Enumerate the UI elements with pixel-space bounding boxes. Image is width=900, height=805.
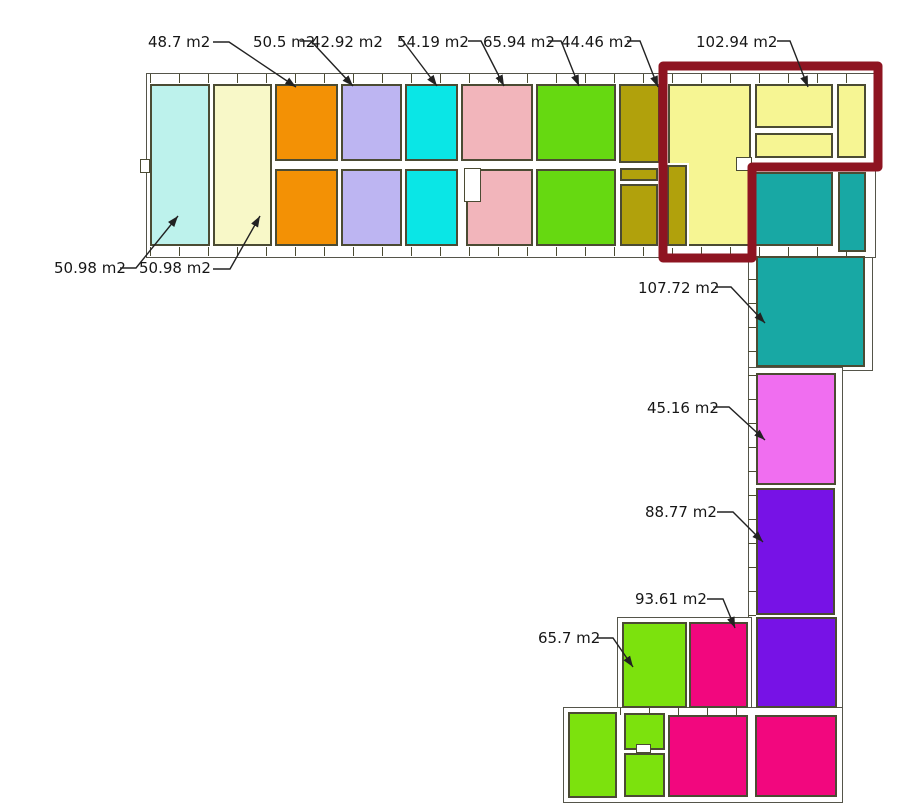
- room-teal-wide[interactable]: [753, 172, 833, 246]
- room-teal-narrow[interactable]: [838, 172, 866, 252]
- area-label: 48.7 m2: [148, 34, 210, 50]
- wall-notch-green-small: [636, 744, 651, 753]
- room-pink-top[interactable]: [461, 84, 533, 161]
- room-olive-top[interactable]: [619, 84, 660, 163]
- area-label: 45.16 m2: [647, 400, 719, 416]
- room-lavender-top[interactable]: [341, 84, 402, 161]
- area-label: 42.92 m2: [311, 34, 383, 50]
- room-orange-top[interactable]: [275, 84, 338, 161]
- area-label: 54.19 m2: [397, 34, 469, 50]
- area-label: 88.77 m2: [645, 504, 717, 520]
- room-crimson-bottom-mid[interactable]: [668, 715, 748, 797]
- area-label: 65.94 m2: [483, 34, 555, 50]
- wall-notch-yellow-main: [736, 157, 752, 171]
- room-orange-bottom[interactable]: [275, 169, 338, 246]
- duct-shaft-pink-room: [464, 168, 481, 202]
- room-green-bottom[interactable]: [536, 169, 616, 246]
- room-lavender-bottom[interactable]: [341, 169, 402, 246]
- window-ticks-bottom-wall: [150, 247, 866, 256]
- room-yellow-top-right[interactable]: [755, 84, 833, 128]
- wall-notch-left-wing: [140, 159, 150, 173]
- room-olive-strip[interactable]: [667, 165, 687, 246]
- area-label: 50.98 m2: [139, 260, 211, 276]
- window-ticks-top-wall: [150, 74, 866, 83]
- area-label: 44.46 m2: [561, 34, 633, 50]
- area-label: 102.94 m2: [696, 34, 777, 50]
- room-green-bottom-small-2[interactable]: [624, 753, 665, 797]
- room-green-top[interactable]: [536, 84, 616, 161]
- room-crimson-mid-row[interactable]: [689, 622, 748, 708]
- area-label: 65.7 m2: [538, 630, 600, 646]
- room-olive-mid[interactable]: [620, 168, 658, 181]
- area-label: 107.72 m2: [638, 280, 719, 296]
- room-yellow-strip[interactable]: [755, 133, 833, 158]
- room-purple-lower[interactable]: [756, 617, 837, 708]
- room-left-room-1[interactable]: [150, 84, 210, 246]
- room-green-bottom-tall[interactable]: [568, 712, 617, 798]
- area-label: 50.98 m2: [54, 260, 126, 276]
- room-purple-upper[interactable]: [756, 488, 835, 615]
- room-cyan-bottom[interactable]: [405, 169, 458, 246]
- room-olive-bottom[interactable]: [620, 184, 658, 246]
- window-ticks-right-wing-left-wall: [748, 258, 756, 616]
- room-magenta[interactable]: [756, 373, 836, 485]
- room-green-mid-row[interactable]: [622, 622, 687, 708]
- room-yellow-right-narrow[interactable]: [837, 84, 866, 158]
- room-left-room-2[interactable]: [213, 84, 272, 246]
- room-crimson-bottom-right[interactable]: [755, 715, 837, 797]
- room-teal-large[interactable]: [756, 256, 865, 367]
- floor-plan: 48.7 m2 50.5 m2 42.92 m2 54.19 m2 65.94 …: [0, 0, 900, 805]
- area-label: 50.5 m2: [253, 34, 315, 50]
- area-label: 93.61 m2: [635, 591, 707, 607]
- room-cyan-top[interactable]: [405, 84, 458, 161]
